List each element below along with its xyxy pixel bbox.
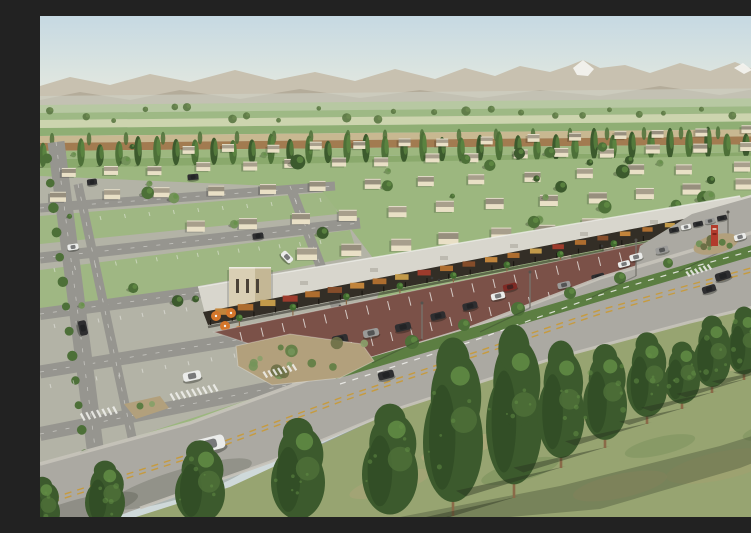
aerial-development-render [40, 16, 751, 517]
render-canvas [40, 16, 751, 517]
